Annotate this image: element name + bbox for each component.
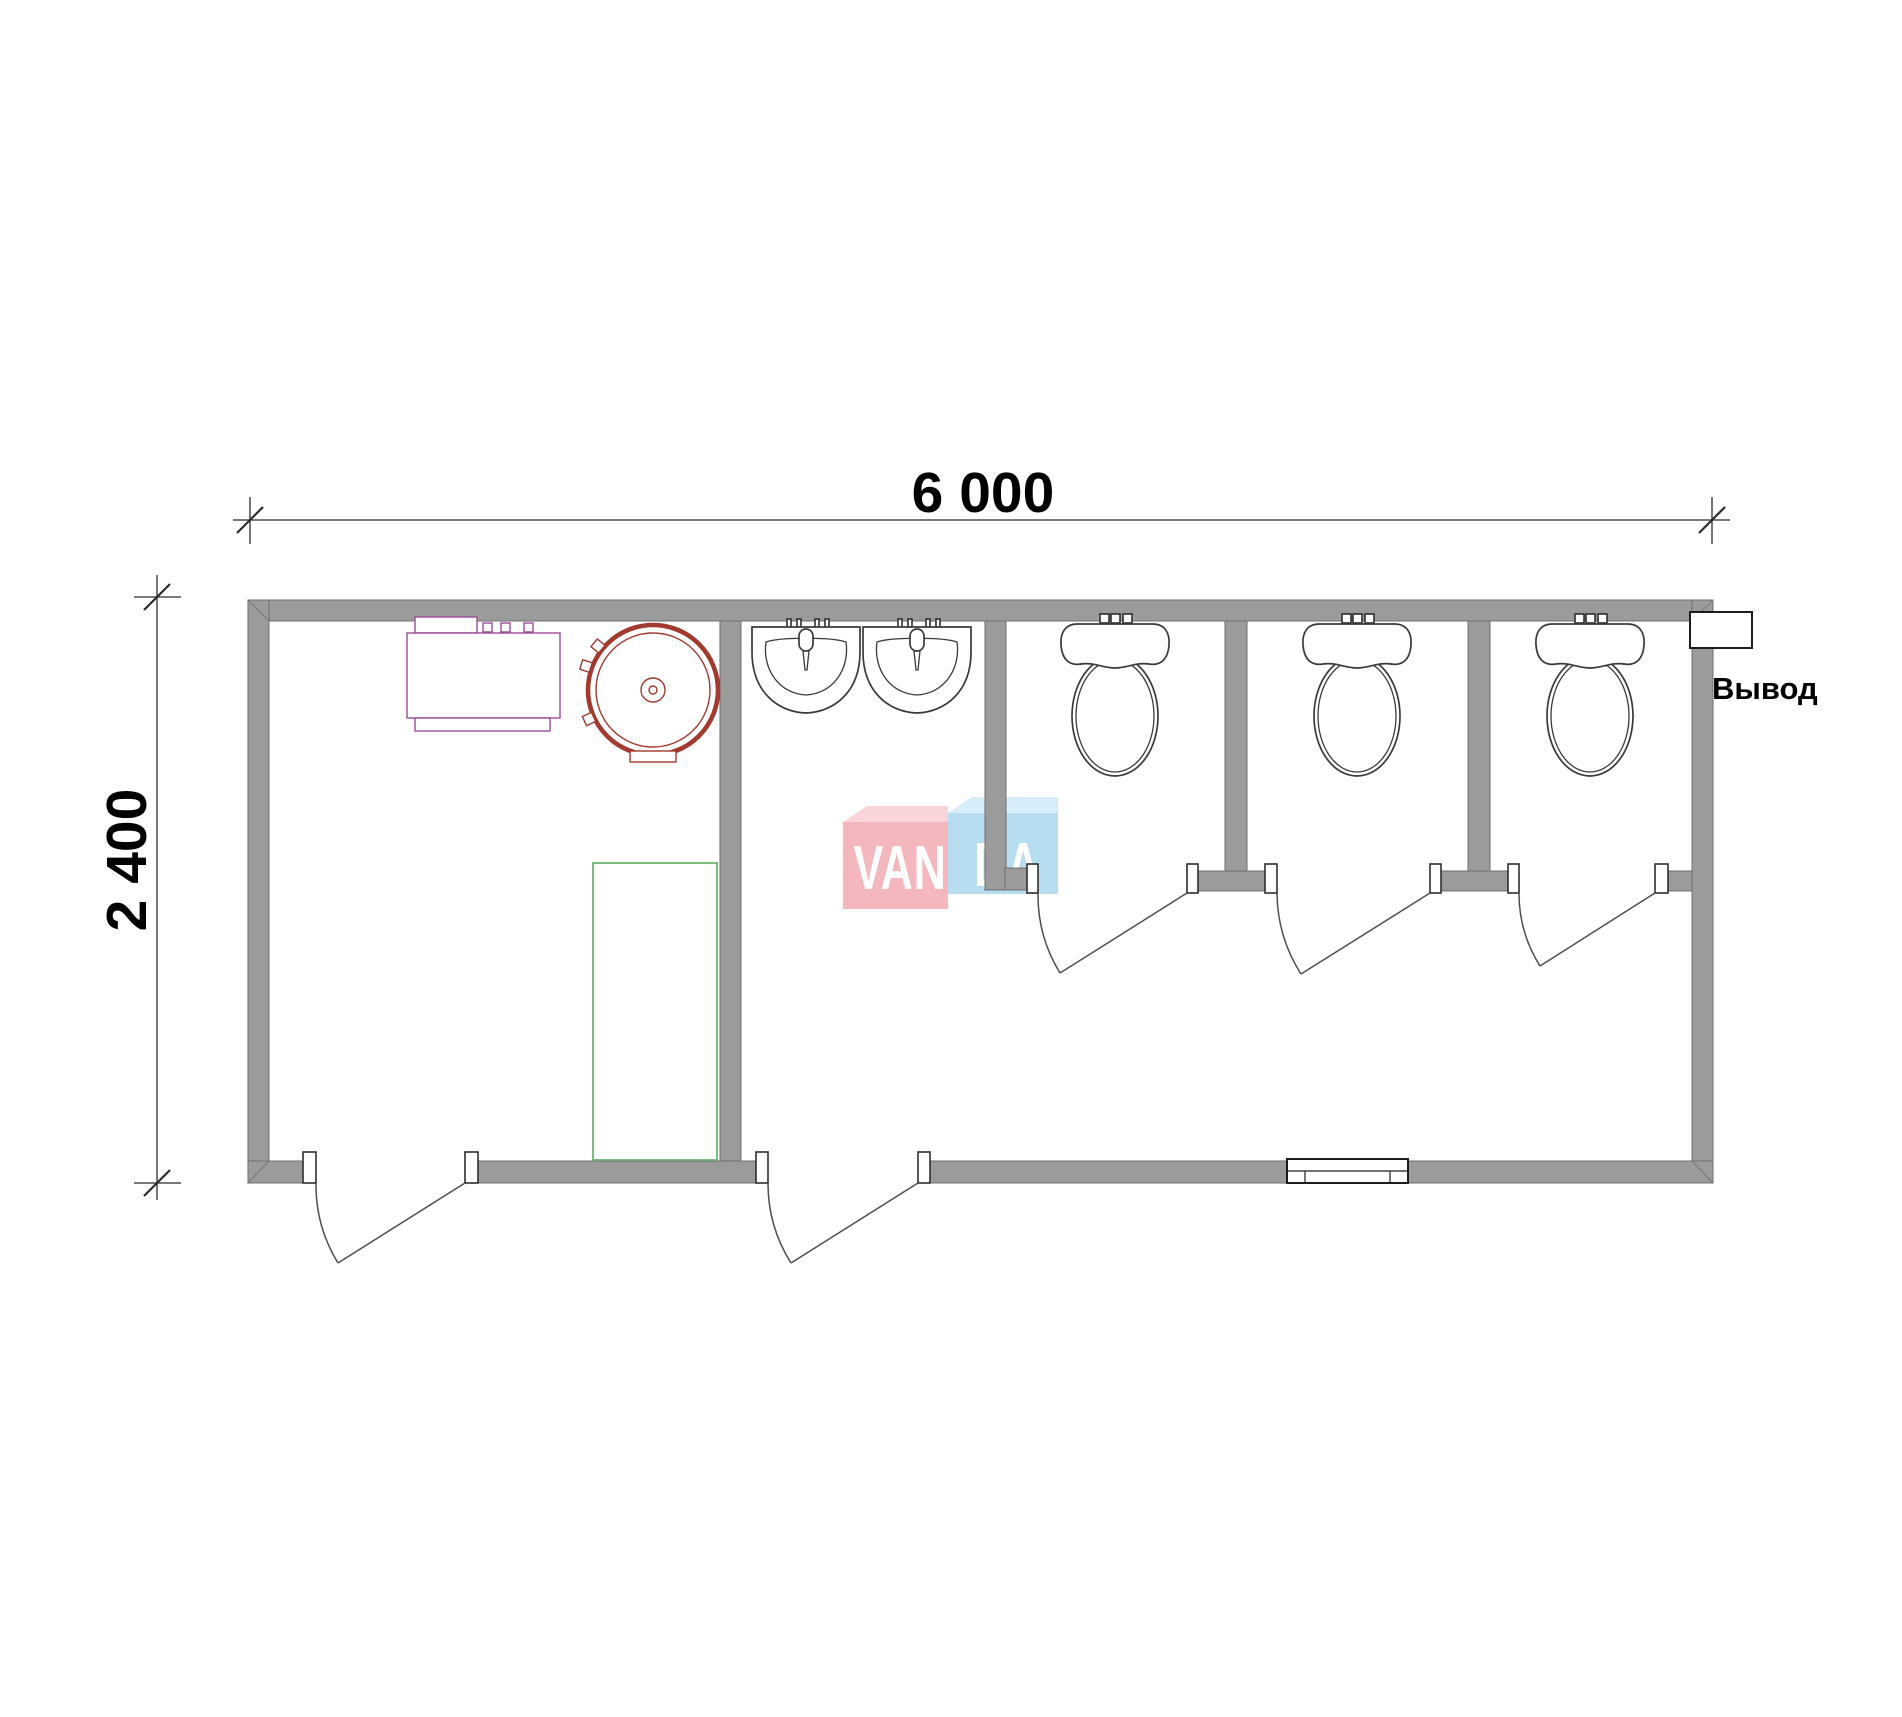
floor-plan-canvas: VAN DA 6 000 2 400 xyxy=(0,0,1902,1717)
door-stall2 xyxy=(1277,893,1430,974)
dimension-height-label: 2 400 xyxy=(95,789,159,932)
jamb-stall2-right xyxy=(1430,864,1441,893)
window xyxy=(1287,1159,1408,1183)
toilet-3 xyxy=(1536,614,1644,776)
partition-stall2-stall3 xyxy=(1468,621,1490,871)
wall-left xyxy=(248,600,269,1183)
jamb-door1-left xyxy=(303,1152,316,1183)
water-heater xyxy=(407,617,560,731)
jamb-stall3-left xyxy=(1508,864,1519,893)
door-stall3 xyxy=(1519,893,1655,966)
jamb-stall1-right xyxy=(1187,864,1198,893)
jamb-door2-right xyxy=(918,1152,930,1183)
partition-washroom-stall1-stub xyxy=(1005,868,1028,890)
outlet-label: Вывод xyxy=(1712,671,1818,706)
wall-right xyxy=(1692,600,1713,1183)
partition-utility-washroom xyxy=(720,621,741,1161)
doors xyxy=(316,893,1655,1263)
partition-stall1-stall2 xyxy=(1225,621,1247,871)
stall2-front-stub xyxy=(1441,871,1508,891)
wall-bottom-seg4 xyxy=(1408,1161,1713,1183)
outlet-box xyxy=(1690,612,1752,648)
watermark-pink-top-face xyxy=(843,806,948,822)
dimension-width-label: 6 000 xyxy=(912,461,1055,525)
partition-washroom-stall1 xyxy=(985,621,1006,890)
door-jambs xyxy=(303,864,1668,1183)
jamb-door2-left xyxy=(756,1152,768,1183)
door-utility-room xyxy=(316,1183,465,1263)
door-washroom xyxy=(768,1183,918,1263)
jamb-stall1-left xyxy=(1027,864,1038,893)
wall-bottom-seg1 xyxy=(248,1161,303,1183)
washbasin-1 xyxy=(752,619,860,713)
wall-bottom-seg3 xyxy=(930,1161,1287,1183)
toilet-2 xyxy=(1303,614,1411,776)
wall-bottom-seg2 xyxy=(477,1161,758,1183)
washbasin-2 xyxy=(863,619,971,713)
dimension-height: 2 400 xyxy=(95,575,181,1200)
dimension-width: 6 000 xyxy=(233,461,1730,544)
vanda-watermark: VAN DA xyxy=(843,797,1058,909)
jamb-stall2-left xyxy=(1265,864,1277,893)
jamb-stall3-right xyxy=(1655,864,1668,893)
stall1-front-stub xyxy=(1198,871,1265,891)
shower-tray xyxy=(593,863,717,1160)
jamb-door1-right xyxy=(465,1152,478,1183)
door-stall1 xyxy=(1038,893,1187,973)
storage-boiler xyxy=(580,625,718,762)
watermark-text-left: VAN xyxy=(853,834,946,903)
toilet-1 xyxy=(1061,614,1169,776)
stall3-front-stub xyxy=(1668,871,1692,891)
